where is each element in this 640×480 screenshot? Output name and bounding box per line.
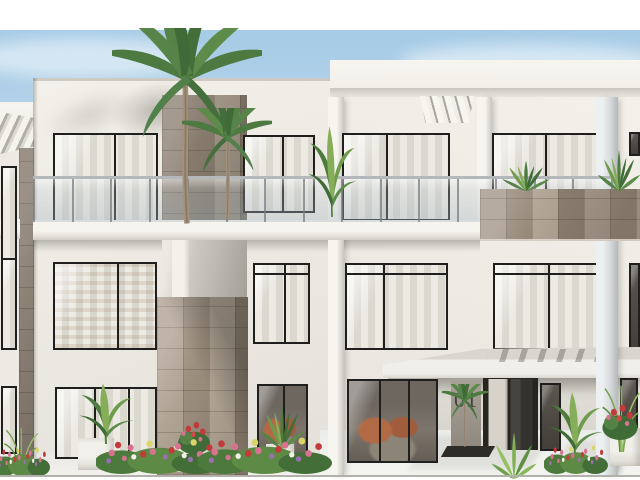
slab-under-shadow — [33, 240, 480, 252]
window-transom — [495, 273, 596, 275]
window-mullion — [284, 265, 286, 342]
right-roof-soffit — [330, 88, 640, 97]
window-right-mid-a — [345, 263, 448, 350]
palm-tree-small — [182, 108, 272, 223]
flowerbed-far-left — [0, 438, 50, 476]
stone-parapet — [480, 189, 640, 241]
railing-post — [72, 179, 74, 222]
window-mullion — [379, 381, 381, 461]
window-center-mid — [253, 263, 310, 344]
window-right-ground-a — [347, 379, 438, 463]
window-mullion — [548, 265, 550, 348]
window-wing-top — [1, 166, 17, 262]
flowerbed-center — [198, 426, 332, 474]
louver-fins — [420, 96, 474, 123]
ground-line — [0, 475, 640, 477]
parapet-plant-right — [594, 136, 640, 192]
balcony-banana-plant — [306, 112, 358, 220]
wing-gap-shadow — [33, 78, 38, 477]
railing-post — [457, 179, 459, 222]
window-transom — [347, 273, 446, 275]
window-mullion — [383, 265, 385, 348]
railing-post — [380, 179, 382, 222]
entrance-palm-plant — [442, 384, 488, 448]
window-right-mid-b — [493, 263, 598, 350]
railing-post — [303, 179, 305, 222]
building-render: 01 — [0, 0, 640, 480]
window-transom — [255, 273, 308, 275]
window-mullion — [408, 381, 410, 461]
railing-post — [33, 179, 35, 222]
canopy-slat-shadows — [486, 349, 610, 362]
window-left-mid — [53, 262, 157, 350]
window-mullion — [117, 264, 119, 348]
planter-roses-right — [598, 396, 640, 442]
tower-recess-pier — [172, 235, 189, 298]
entrance-fan-plant — [486, 418, 542, 480]
railing-post — [418, 179, 420, 222]
parapet-plant-left — [498, 150, 554, 192]
window-right-mid-edge — [629, 263, 640, 350]
window-wing-mid — [1, 258, 17, 350]
